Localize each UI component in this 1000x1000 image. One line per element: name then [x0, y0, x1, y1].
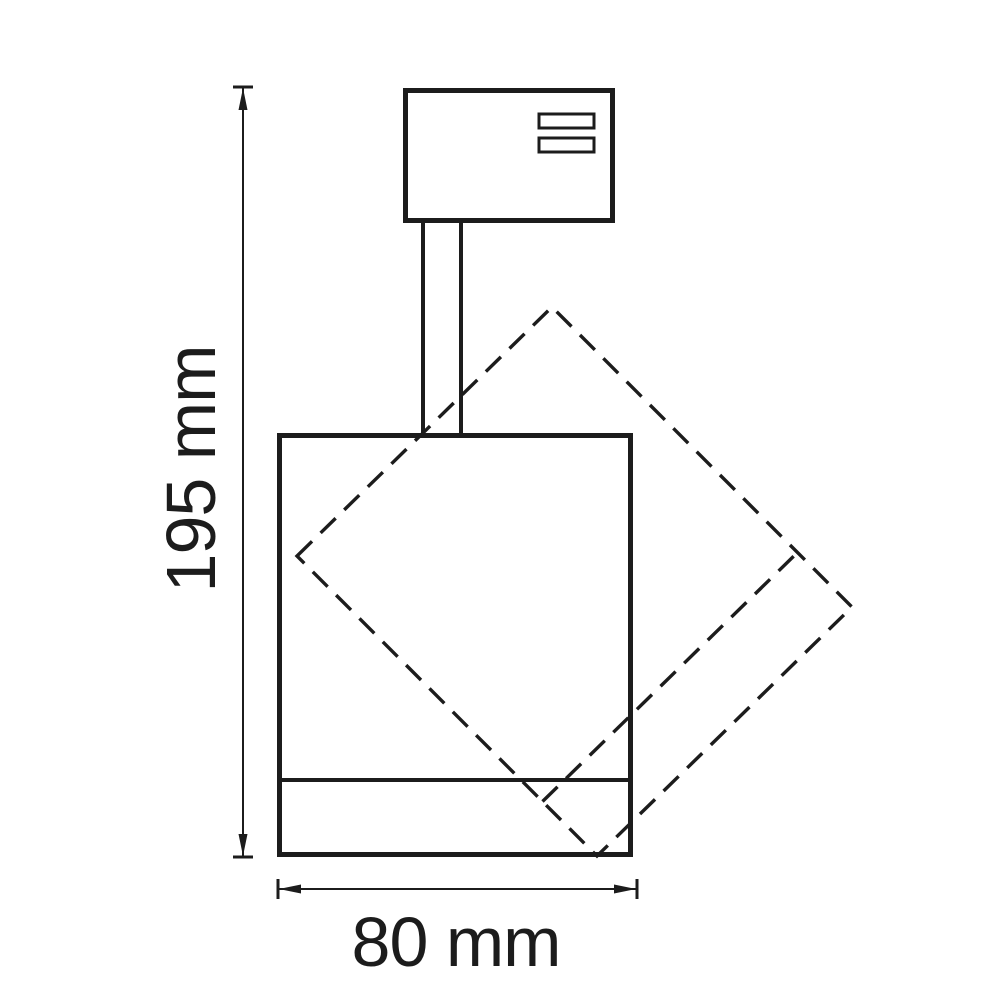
drawing-svg: 195 mm 80 mm — [0, 0, 1000, 1000]
arrow-down-icon — [239, 834, 248, 856]
arrow-right-icon — [614, 885, 636, 894]
height-dimension-label: 195 mm — [152, 346, 230, 593]
lamp-body — [280, 436, 631, 855]
arrow-up-icon — [239, 88, 248, 110]
width-dimension-label: 80 mm — [352, 903, 561, 981]
stem — [423, 205, 461, 440]
adapter-slot-top — [539, 114, 594, 128]
adapter-slot-bottom — [539, 138, 594, 152]
technical-drawing-canvas: 195 mm 80 mm — [0, 0, 1000, 1000]
track-adapter-box — [406, 91, 613, 221]
width-dimension: 80 mm — [278, 879, 637, 981]
arrow-left-icon — [279, 885, 301, 894]
height-dimension: 195 mm — [152, 87, 253, 857]
